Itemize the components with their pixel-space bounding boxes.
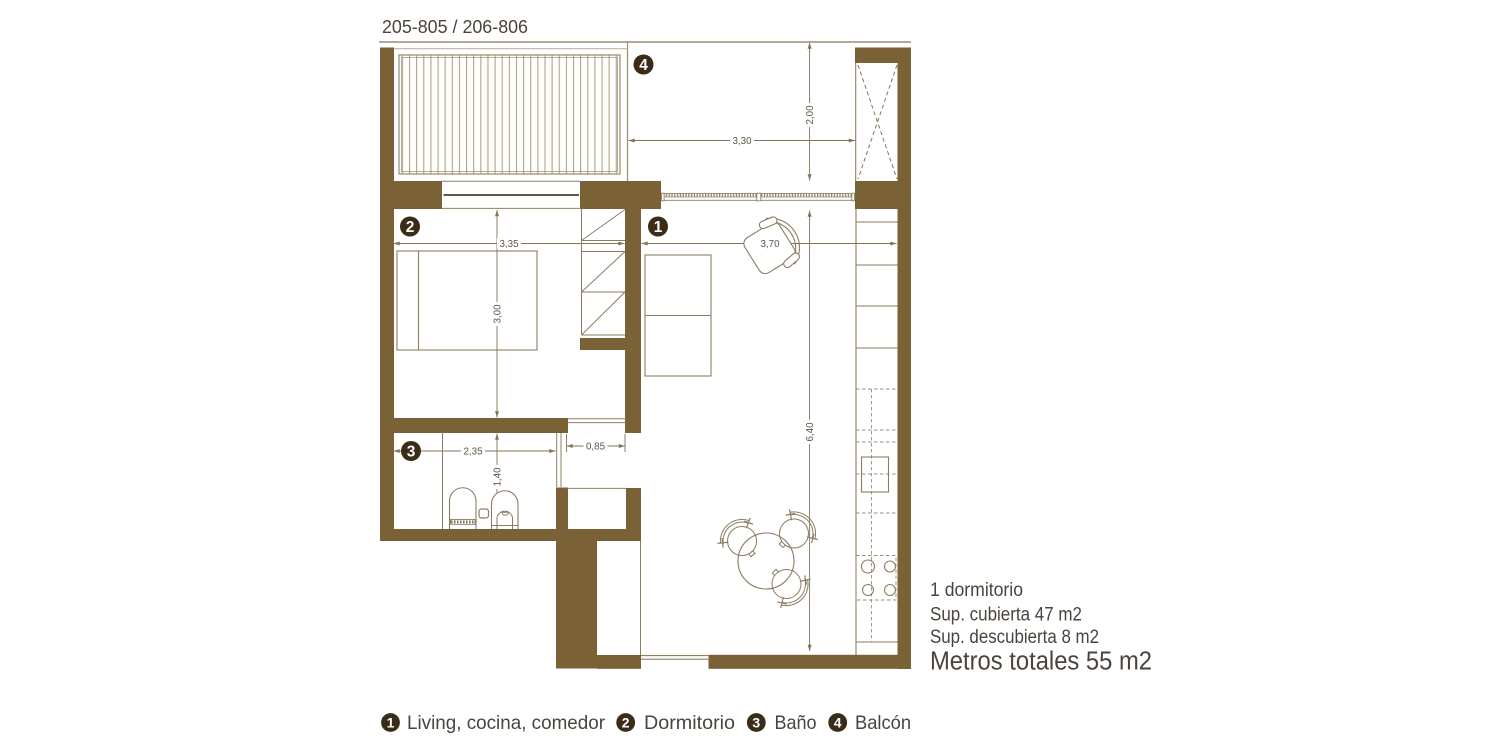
svg-text:2: 2 bbox=[406, 219, 415, 236]
svg-text:Living, cocina, comedor: Living, cocina, comedor bbox=[407, 712, 605, 734]
svg-text:Metros totales 55 m2: Metros totales 55 m2 bbox=[930, 648, 1152, 676]
svg-text:3,70: 3,70 bbox=[760, 239, 780, 250]
svg-text:3,00: 3,00 bbox=[493, 304, 504, 324]
svg-text:1 dormitorio: 1 dormitorio bbox=[930, 580, 1023, 601]
svg-text:2: 2 bbox=[622, 714, 630, 730]
svg-text:3: 3 bbox=[407, 443, 416, 460]
svg-text:4: 4 bbox=[639, 57, 648, 74]
svg-text:Dormitorio: Dormitorio bbox=[644, 712, 735, 734]
svg-text:Sup. descubierta 8 m2: Sup. descubierta 8 m2 bbox=[930, 627, 1099, 648]
svg-text:6,40: 6,40 bbox=[805, 422, 816, 442]
svg-text:Sup. cubierta 47 m2: Sup. cubierta 47 m2 bbox=[930, 605, 1082, 626]
svg-text:0,85: 0,85 bbox=[586, 442, 606, 453]
svg-text:2,00: 2,00 bbox=[805, 105, 816, 125]
svg-text:1,40: 1,40 bbox=[493, 467, 504, 487]
svg-text:205-805 / 206-806: 205-805 / 206-806 bbox=[382, 17, 528, 37]
svg-text:4: 4 bbox=[834, 714, 842, 730]
svg-text:3: 3 bbox=[752, 714, 760, 730]
svg-text:1: 1 bbox=[654, 219, 663, 236]
svg-text:Balcón: Balcón bbox=[855, 712, 911, 734]
svg-text:3,35: 3,35 bbox=[499, 239, 519, 250]
svg-text:Baño: Baño bbox=[775, 712, 817, 734]
svg-text:3,30: 3,30 bbox=[732, 136, 752, 147]
svg-text:2,35: 2,35 bbox=[463, 447, 483, 458]
svg-text:1: 1 bbox=[387, 714, 395, 730]
